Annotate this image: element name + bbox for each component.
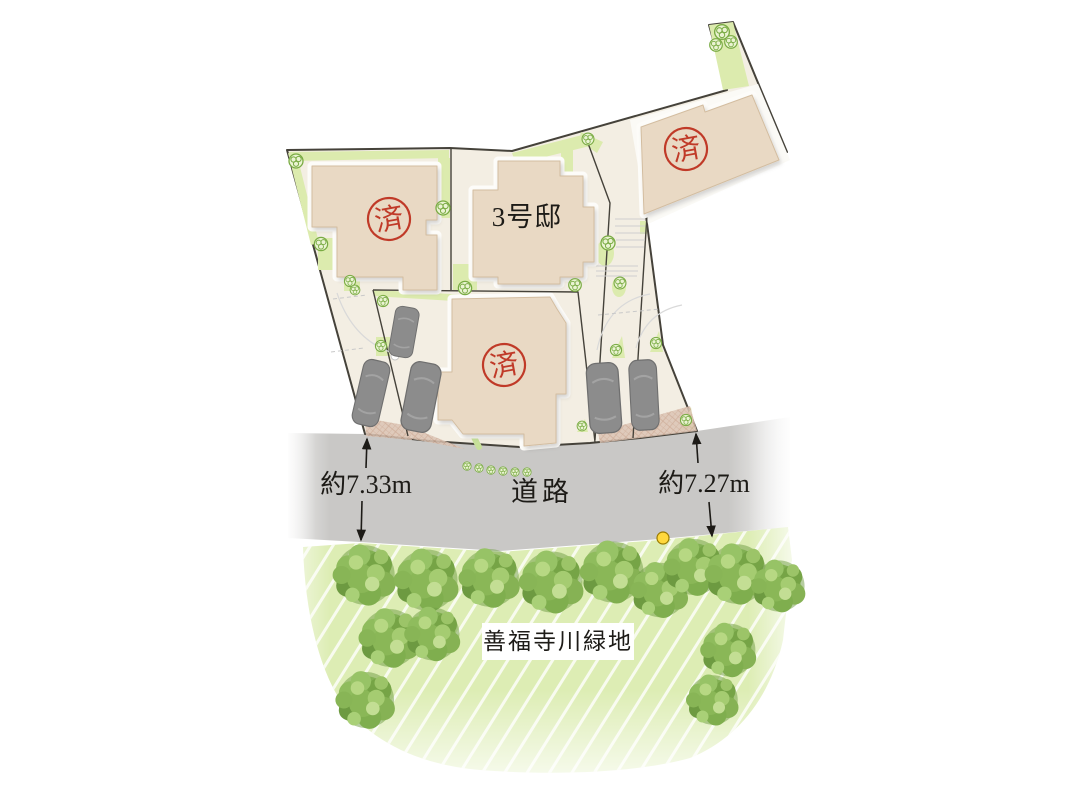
site-plan-figure: 済 済 3号邸 済 道路 (0, 0, 1080, 810)
dimension-arrow (366, 439, 367, 468)
shrub-icon (577, 421, 587, 431)
dimension-right-label: 約7.27m (658, 469, 750, 498)
shrub-icon (725, 36, 738, 49)
shrub-icon (458, 281, 471, 294)
utility-marker-dot (657, 532, 669, 544)
shrub-icon (614, 277, 626, 289)
lot-3-label: 3号邸 (492, 202, 563, 232)
shrub-icon (523, 468, 531, 476)
shrub-icon (650, 337, 661, 348)
shrub-icon (569, 279, 582, 292)
shrub-icon (499, 467, 507, 475)
stamp-text: 済 (487, 347, 521, 385)
stamp-text: 済 (372, 201, 406, 239)
green-space-label-box: 善福寺川緑地 (482, 623, 634, 660)
shrub-icon (314, 237, 327, 250)
stamp-text: 済 (669, 131, 703, 169)
road-label: 道路 (511, 477, 573, 507)
dimension-left-label: 約7.33m (320, 470, 412, 499)
shrub-icon (680, 414, 691, 425)
car-icon (628, 359, 659, 430)
shrub-icon (610, 344, 621, 355)
shrub-icon (375, 340, 386, 351)
shrub-icon (475, 464, 483, 472)
site-lots: 済 済 3号邸 済 (287, 22, 790, 476)
shrub-icon (582, 133, 594, 145)
shrub-icon (289, 154, 303, 168)
car-icon (586, 362, 623, 434)
site-plan-canvas: 済 済 3号邸 済 道路 (0, 0, 1080, 810)
shrub-icon (511, 468, 519, 476)
shrub-icon (601, 236, 615, 250)
dimension-arrow (361, 501, 362, 540)
shrub-icon (487, 466, 495, 474)
shrub-icon (377, 295, 388, 306)
shrub-icon (710, 39, 723, 52)
shrub-icon (350, 285, 360, 295)
shrub-icon (463, 462, 471, 470)
shrub-icon (436, 201, 450, 215)
green-space-label: 善福寺川緑地 (483, 629, 633, 654)
